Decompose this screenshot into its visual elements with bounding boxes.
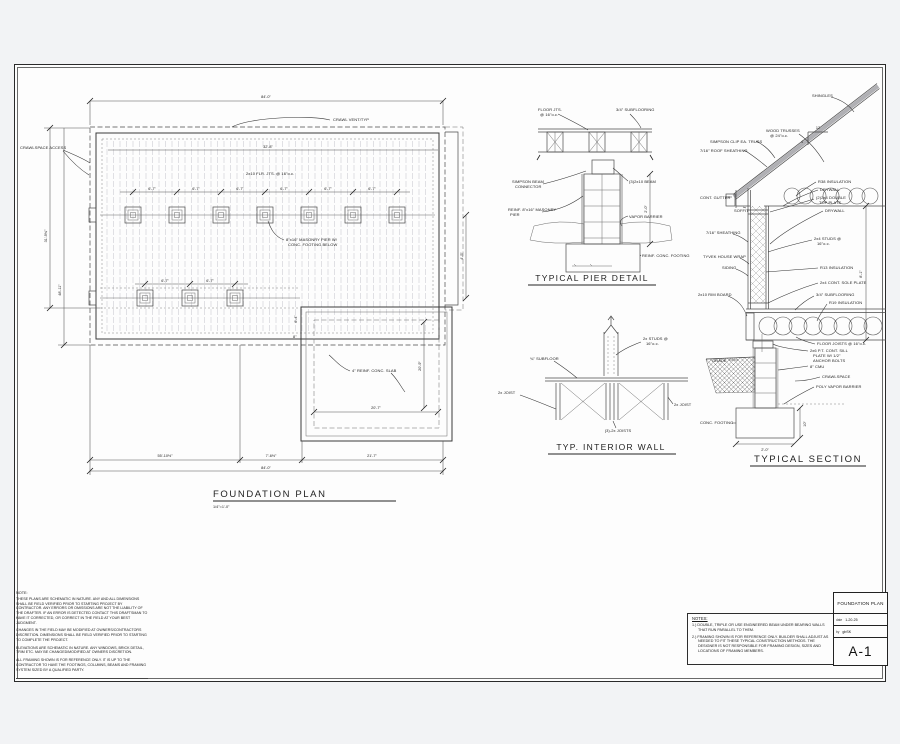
beam-end — [592, 160, 614, 174]
label-masonry-pier-2: CONC. FOOTING BELOW — [288, 242, 337, 247]
pier-footing — [566, 244, 640, 272]
label-r38: R38 INSULATION — [818, 179, 851, 184]
dim-pier-spacing: 6'-7" — [148, 187, 156, 191]
title-block: FOUNDATION PLAN date 1-20-25 by gbSK A-1 — [833, 592, 888, 666]
dim-pier-spacing: 6'-7" — [368, 187, 376, 191]
foundation-plan-drawing: 84'-0" 32'-8" CRAWL VENT/TYP CRAWLSPACE … — [20, 95, 469, 509]
x-bridging — [561, 383, 663, 420]
dim-left-outer: 48'-11" — [58, 284, 62, 296]
notes-box: NOTES: 1.) DOUBLE, TRIPLE OR USE ENGINEE… — [687, 613, 838, 665]
title-block-date-row: date 1-20-25 — [834, 614, 887, 626]
interior-wall-drawing: 2x STUDS @ 16"o.c. ¾" SUBFLOOR 2x JOIST … — [498, 316, 692, 454]
dim-footing-height: 10" — [803, 421, 807, 427]
plan-bumpout — [445, 132, 458, 305]
dim-pier-depth: 2'-0" — [644, 205, 648, 213]
dim-pier-spacing: 6'-7" — [206, 279, 214, 283]
r19-insulation-loops — [759, 317, 882, 335]
sheet-number: A-1 — [834, 638, 887, 665]
dim-footing-width: 2'-0" — [761, 448, 769, 452]
dim-pier-spacing: 6'-7" — [161, 279, 169, 283]
pitch-rise: 4 — [801, 140, 803, 144]
general-notes-block: NOTE: THESE PLANS ARE SCHEMATIC IN NATUR… — [16, 591, 148, 679]
label-subfloor: ¾" SUBFLOOR — [530, 356, 559, 361]
title-block-project: FOUNDATION PLAN — [834, 593, 887, 614]
label-housewrap: TYVEK HOUSE WRAP — [703, 254, 746, 259]
label-joist-left: 2x JOIST — [498, 390, 516, 395]
general-notes-p4: ALL FRAMING SHOWN IS FOR REFERENCE ONLY.… — [16, 658, 148, 672]
label-shingles: SHINGLES — [812, 93, 833, 98]
label-roof-sheathing: 7/16" ROOF SHEATHING — [700, 148, 748, 153]
dim-bottom-3: 21'-7" — [367, 454, 377, 458]
dim-bottom-2: 7'-6½" — [266, 454, 277, 458]
label-crawlspace-access: CRAWLSPACE ACCESS — [20, 145, 67, 150]
label-studs-2: 16"o.c. — [646, 341, 659, 346]
dim-step-width: 8" — [293, 335, 297, 339]
by-value: gbSK — [842, 630, 851, 634]
typical-section-drawing: SHINGLES 12 4 WOOD TRUSSES @ 24"o.c. SIM… — [698, 84, 886, 467]
label-wall-studs-2: 16"o.c. — [817, 241, 830, 246]
label-joist-right: 2x JOIST — [674, 402, 692, 407]
label-crawl-vent: CRAWL VENT/TYP — [333, 117, 369, 122]
label-r13: R13 INSULATION — [820, 265, 853, 270]
label-floor-joists: 2x10 FLR. JTS. @ 16"o.c. — [246, 171, 294, 176]
label-rim-board: 2x10 RIM BOARD — [698, 292, 732, 297]
date-label: date — [836, 618, 842, 622]
label-subflooring: 3/4" SUBFLOORING — [816, 292, 855, 297]
dim-pier-spacing: 6'-7" — [280, 187, 288, 191]
sill-plate — [753, 341, 773, 348]
interior-wall-leaders — [520, 342, 673, 428]
general-notes-p1: THESE PLANS ARE SCHEMATIC IN NATURE. ANY… — [16, 597, 148, 625]
title-block-by-row: by gbSK — [834, 626, 887, 638]
pier-detail-title: TYPICAL PIER DETAIL — [535, 273, 649, 283]
label-soffit: SOFFIT — [734, 208, 749, 213]
label-crawlspace: CRAWLSPACE — [822, 374, 851, 379]
dim-garage-width: 20'-7" — [371, 406, 381, 410]
by-label: by — [836, 630, 839, 634]
dim-bottom-total: 84'-0" — [261, 466, 271, 470]
notes-box-item-2: 2.) FRAMING SHOWN IS FOR REFERENCE ONLY.… — [692, 635, 833, 654]
dim-left-inner: 31'-9¾" — [44, 229, 48, 242]
label-trusses-2: @ 24"o.c. — [770, 133, 788, 138]
dim-pier-spacing: 6'-7" — [324, 187, 332, 191]
label-simpson-clip: SIMPSON CLIP EA. TRUSS — [710, 139, 763, 144]
label-sill-plate-3: ANCHOR BOLTS — [813, 358, 845, 363]
label-subflooring: 3/4" SUBFLOORING — [616, 107, 655, 112]
label-top-plate-2: TOP PLATE — [819, 200, 842, 205]
rim-board — [746, 313, 754, 340]
foundation-plan-title: FOUNDATION PLAN — [213, 489, 327, 500]
label-poly-vapor: POLY VAPOR BARRIER — [816, 384, 861, 389]
dim-step-height: 6'-4" — [294, 315, 298, 323]
label-slab: 4" REINF. CONC. SLAB — [352, 368, 397, 373]
label-siding: SIDING — [722, 265, 736, 270]
dim-garage-height: 20'-9" — [418, 361, 422, 371]
wall-insulation — [751, 206, 766, 303]
label-reinf-pier-2: PIER — [510, 212, 520, 217]
label-floor-joists: FLOOR JOISTS @ 16"o.c. — [817, 341, 866, 346]
foundation-plan-scale: 1/4"=1'-0" — [213, 505, 230, 509]
label-drywall-ceiling: DRYWALL — [820, 187, 840, 192]
label-conc-footing: CONC. FOOTING — [700, 420, 733, 425]
stud-wall — [604, 316, 618, 376]
label-r19: R19 INSULATION — [829, 300, 862, 305]
general-notes-title: NOTE: — [16, 591, 148, 596]
label-simpson-connector-2: CONNECTOR — [515, 184, 541, 189]
date-value: 1-20-25 — [845, 618, 857, 622]
label-sole-plate: 2x4 CONT. SOLE PLATE — [820, 280, 867, 285]
conc-footing — [736, 408, 794, 438]
interior-wall-title: TYP. INTERIOR WALL — [556, 442, 665, 452]
label-beam: (3)2x10 BEAM — [629, 179, 656, 184]
notes-box-title: NOTES: — [692, 616, 833, 621]
dim-bottom-1: 55'-10½" — [158, 454, 174, 458]
dim-right-bump: 4'-5" — [460, 252, 464, 260]
dim-wall-height: 8'-1" — [859, 270, 863, 278]
dim-inner-width: 32'-8" — [263, 145, 273, 149]
earth-hatch-right — [620, 222, 672, 243]
label-cmu: 8" CMU — [810, 364, 824, 369]
general-notes-p2: CHANGES IN THE FIELD MAY BE MODIFIED AT … — [16, 628, 148, 642]
dim-pier-spacing: 6'-7" — [192, 187, 200, 191]
label-gutter: CONT. GUTTER — [700, 195, 731, 200]
pier-detail-drawing: FLOOR JTS. @ 16"o.c. 3/4" SUBFLOORING SI… — [508, 107, 690, 285]
label-drywall-wall: DRYWALL — [825, 208, 845, 213]
label-vapor-barrier: VAPOR BARRIER — [629, 214, 663, 219]
floor-joists — [556, 383, 668, 420]
general-notes-p3: ELEVATIONS ARE SCHEMATIC IN NATURE. ANY … — [16, 646, 148, 655]
label-floor-joists-2: @ 16"o.c. — [540, 112, 558, 117]
earth-hatch-left — [530, 222, 584, 243]
label-wall-sheathing: 7/16" SHEATHING — [706, 230, 741, 235]
dim-pier-spacing: 6'-7" — [236, 187, 244, 191]
label-reinf-footing: REINF. CONC. FOOTING — [642, 253, 690, 258]
label-grade: GRADE — [712, 358, 727, 363]
notes-box-item-1: 1.) DOUBLE, TRIPLE OR USE ENGINEERED BEA… — [692, 623, 833, 633]
typical-section-title: TYPICAL SECTION — [754, 454, 862, 465]
drawing-sheet-page: 84'-0" 32'-8" CRAWL VENT/TYP CRAWLSPACE … — [0, 0, 900, 744]
label-triple-joists: (3)-2x JOISTS — [605, 428, 632, 433]
dim-top-width: 84'-0" — [261, 95, 271, 99]
pitch-run: 12 — [816, 126, 820, 130]
